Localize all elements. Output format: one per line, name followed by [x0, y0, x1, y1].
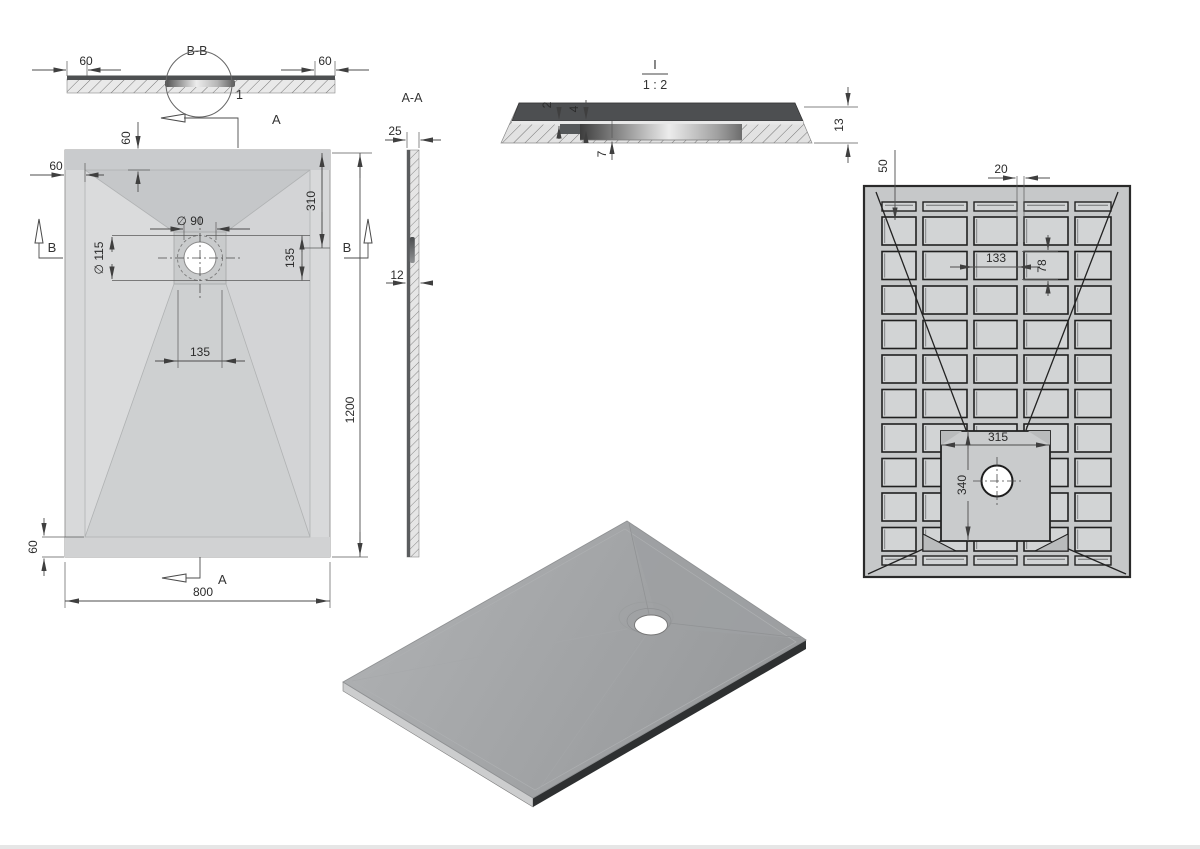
dim-aa-edge-height: 25: [388, 124, 402, 138]
section-b-left-label: B: [48, 240, 57, 255]
dim-drain-diameter: ∅ 90: [176, 214, 203, 228]
dim-plan-top-offset: 60: [119, 131, 133, 145]
page-bottom-border: [0, 845, 1200, 849]
dim-bottom-pocket-width: 133: [986, 251, 1006, 265]
dim-plan-width: 800: [193, 585, 213, 599]
dim-bb-left: 60: [79, 54, 93, 68]
dim-bottom-edge-offset: 50: [876, 159, 890, 173]
dim-detail-step: 4: [567, 105, 581, 112]
bottom-view: 50 20 133 78 315 340: [864, 150, 1130, 577]
dim-flat-height: 340: [955, 475, 969, 495]
detail-callout-label: 1: [236, 88, 243, 102]
dim-drain-below: 135: [190, 345, 210, 359]
section-aa-view: A-A 25 12: [385, 91, 441, 557]
detail-scale: 1 : 2: [643, 78, 667, 92]
dim-plan-bottom-offset: 60: [26, 540, 40, 554]
dim-bottom-pocket-height: 78: [1035, 259, 1049, 273]
dim-plan-left-offset: 60: [49, 159, 63, 173]
dim-drain-right: 135: [283, 248, 297, 268]
dim-plan-length: 1200: [343, 396, 357, 423]
detail-title: I: [653, 58, 656, 72]
dim-detail-lip: 2: [540, 101, 554, 108]
cad-drawing: B-B 1 60 60 A: [0, 0, 1200, 849]
dim-flat-width: 315: [988, 430, 1008, 444]
section-aa-title: A-A: [402, 91, 424, 105]
drain-hole-3d: [635, 615, 668, 635]
section-a-bottom-label: A: [218, 572, 227, 587]
plan-view: ∅ 90 ∅ 115 60 60 310 135: [26, 122, 372, 608]
dim-detail-total-thickness: 13: [832, 118, 846, 132]
isometric-view: [343, 521, 806, 807]
dim-bottom-rib-width: 20: [994, 162, 1008, 176]
section-b-right-label: B: [343, 240, 352, 255]
dim-drain-from-top: 310: [304, 191, 318, 211]
drawing-canvas: B-B 1 60 60 A: [0, 0, 1200, 849]
dim-detail-depth: 7: [595, 150, 609, 157]
section-bb-view: B-B 1 60 60 A: [32, 44, 369, 148]
detail-i-view: I 1 : 2 2 4 7 13: [501, 58, 858, 163]
dim-aa-mid-thickness: 12: [390, 268, 404, 282]
dim-bb-right: 60: [318, 54, 332, 68]
section-a-top-label: A: [272, 112, 281, 127]
dim-recess-diameter: ∅ 115: [92, 241, 106, 274]
